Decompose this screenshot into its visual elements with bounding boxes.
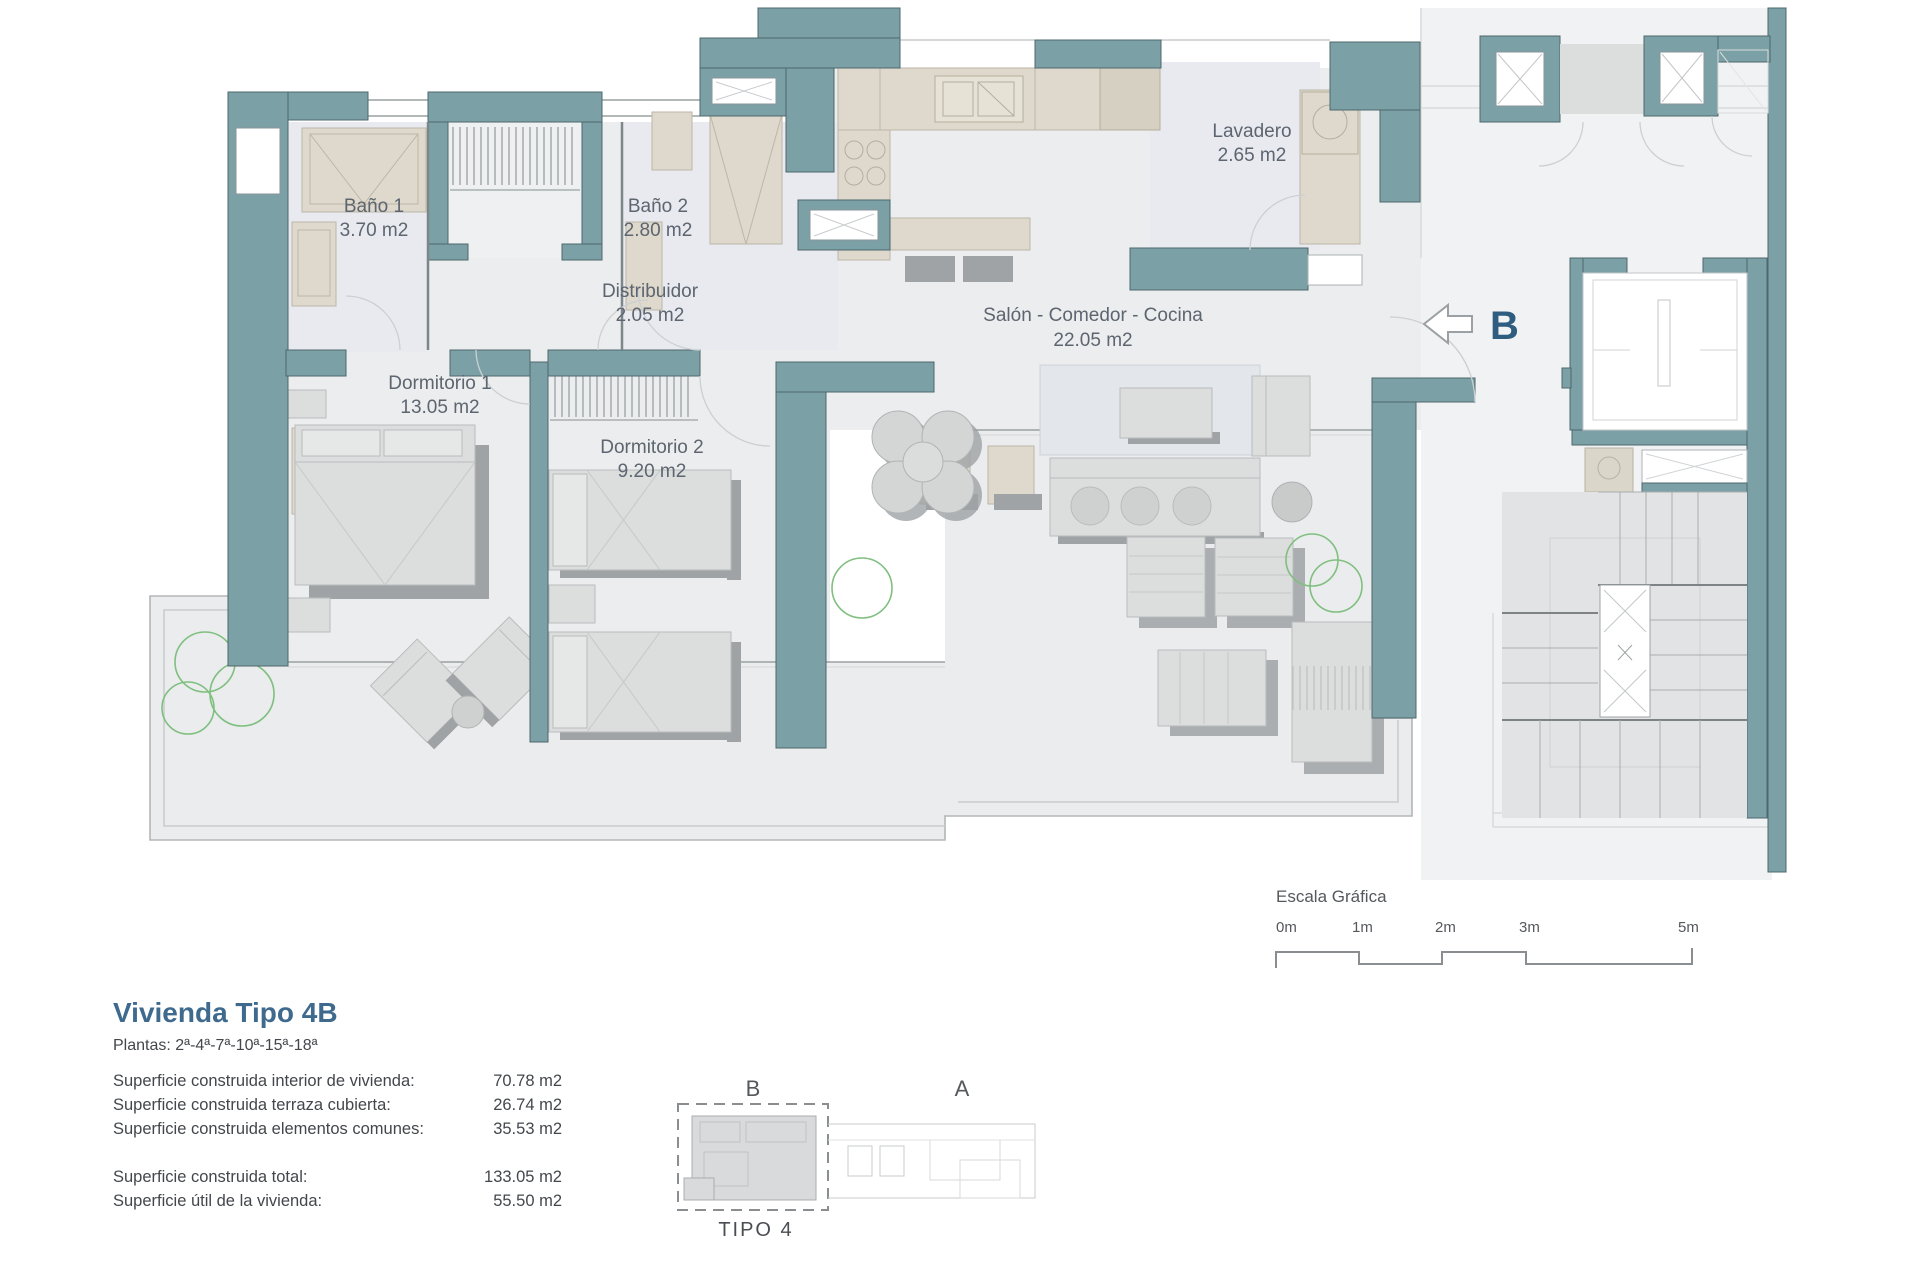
room-label-dorm1: Dormitorio 1 bbox=[388, 373, 491, 394]
key-unit-b: B bbox=[746, 1076, 761, 1101]
scale-tick-2: 2m bbox=[1435, 919, 1456, 936]
laundry-fixtures bbox=[1300, 90, 1360, 244]
total-label: Superficie construida total: bbox=[113, 1168, 307, 1186]
scale-tick-0: 0m bbox=[1276, 919, 1297, 936]
bed-double bbox=[282, 390, 489, 632]
room-label-salon: Salón - Comedor - Cocina bbox=[983, 305, 1203, 326]
room-label-distribuidor: Distribuidor bbox=[602, 281, 699, 302]
row-value: 26.74 m2 bbox=[493, 1096, 562, 1114]
room-label-lavadero: Lavadero bbox=[1212, 121, 1291, 142]
sheet-title: Vivienda Tipo 4B bbox=[113, 997, 338, 1028]
room-area-distribuidor: 2.05 m2 bbox=[616, 305, 685, 326]
total-label: Superficie útil de la vivienda: bbox=[113, 1192, 322, 1210]
stairwell bbox=[1502, 448, 1747, 818]
unit-b-letter: B bbox=[1490, 304, 1519, 348]
row-value: 35.53 m2 bbox=[493, 1120, 562, 1138]
room-label-dorm2: Dormitorio 2 bbox=[600, 437, 703, 458]
scale-bar: Escala Gráfica 0m 1m 2m 3m 5m bbox=[1276, 887, 1699, 968]
row-label: Superficie construida interior de vivien… bbox=[113, 1072, 415, 1090]
elevator-shaft-small-1 bbox=[1480, 36, 1560, 122]
room-area-bano1: 3.70 m2 bbox=[340, 220, 409, 241]
room-area-bano2: 2.80 m2 bbox=[624, 220, 693, 241]
row-value: 70.78 m2 bbox=[493, 1072, 562, 1090]
scale-tick-3: 3m bbox=[1519, 919, 1540, 936]
clover-table bbox=[872, 411, 982, 521]
key-caption: TIPO 4 bbox=[718, 1219, 793, 1241]
row-label: Superficie construida terraza cubierta: bbox=[113, 1096, 391, 1114]
room-label-bano1: Baño 1 bbox=[344, 196, 404, 217]
room-area-dorm2: 9.20 m2 bbox=[618, 461, 687, 482]
key-unit-a: A bbox=[955, 1076, 970, 1101]
scale-title: Escala Gráfica bbox=[1276, 887, 1387, 906]
floor-plan-drawing: Baño 1 3.70 m2 Baño 2 2.80 m2 Distribuid… bbox=[0, 0, 1920, 1280]
room-area-salon: 22.05 m2 bbox=[1053, 330, 1132, 351]
room-area-dorm1: 13.05 m2 bbox=[400, 397, 479, 418]
floor-plan-sheet: Baño 1 3.70 m2 Baño 2 2.80 m2 Distribuid… bbox=[0, 0, 1920, 1280]
scale-tick-5: 5m bbox=[1678, 919, 1699, 936]
key-plan: B A TIPO 4 bbox=[678, 1076, 1035, 1241]
total-value: 55.50 m2 bbox=[493, 1192, 562, 1210]
scale-tick-1: 1m bbox=[1352, 919, 1373, 936]
room-area-lavadero: 2.65 m2 bbox=[1218, 145, 1287, 166]
total-value: 133.05 m2 bbox=[484, 1168, 562, 1186]
title-block: Vivienda Tipo 4B Plantas: 2ª-4ª-7ª-10ª-1… bbox=[113, 997, 562, 1210]
room-label-bano2: Baño 2 bbox=[628, 196, 688, 217]
shaft-spacer bbox=[1560, 44, 1644, 114]
sheet-plantas: Plantas: 2ª-4ª-7ª-10ª-15ª-18ª bbox=[113, 1037, 318, 1054]
row-label: Superficie construida elementos comunes: bbox=[113, 1120, 424, 1138]
